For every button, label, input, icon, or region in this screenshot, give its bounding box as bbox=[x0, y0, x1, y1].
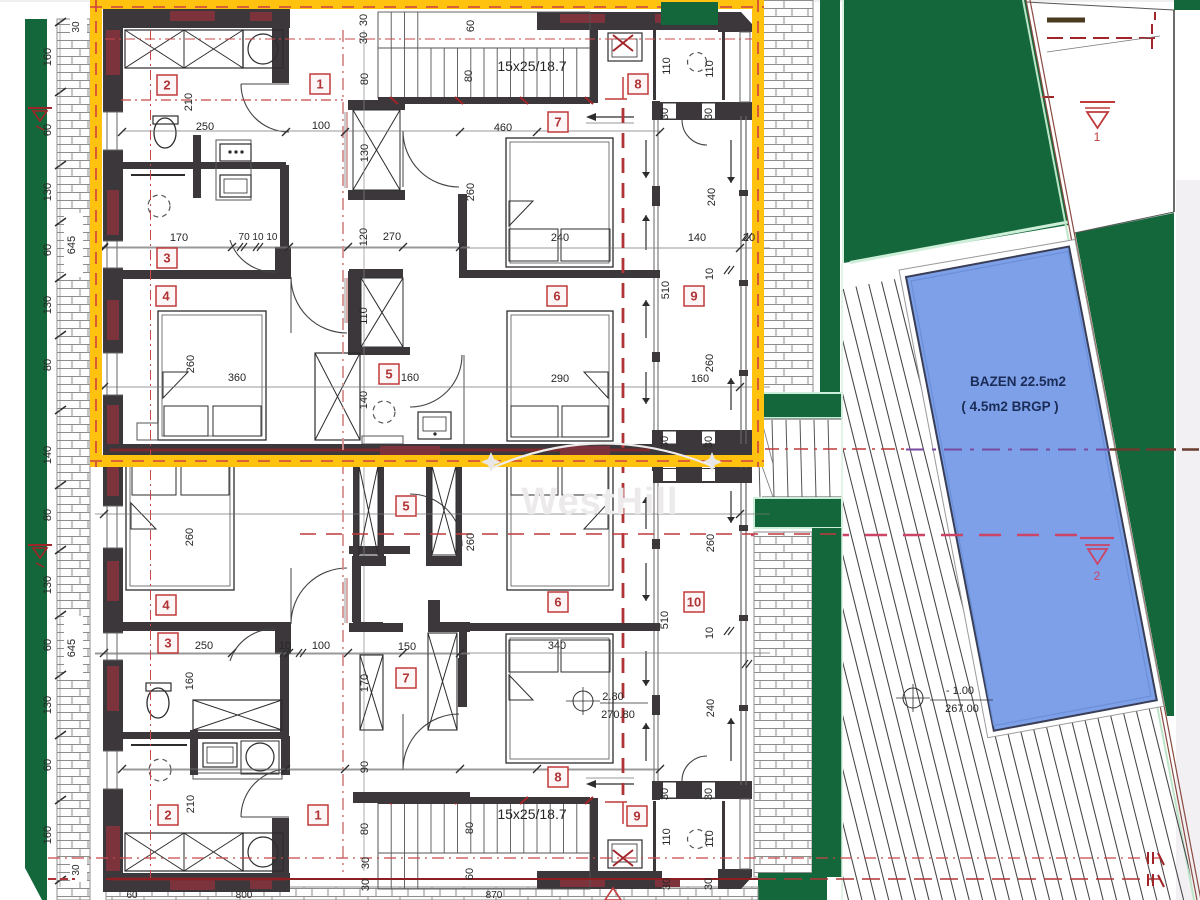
svg-text:7: 7 bbox=[402, 671, 409, 686]
svg-text:80: 80 bbox=[463, 70, 475, 82]
svg-text:250: 250 bbox=[196, 121, 214, 133]
svg-text:4: 4 bbox=[162, 598, 170, 613]
svg-text:170: 170 bbox=[170, 232, 188, 244]
svg-text:9: 9 bbox=[633, 809, 640, 824]
svg-text:130: 130 bbox=[42, 576, 54, 594]
svg-text:100: 100 bbox=[312, 120, 330, 132]
svg-text:15x25/18.7: 15x25/18.7 bbox=[497, 58, 566, 74]
svg-text:250: 250 bbox=[195, 640, 213, 652]
svg-text:30: 30 bbox=[360, 857, 372, 869]
svg-text:120: 120 bbox=[358, 228, 370, 246]
svg-text:30: 30 bbox=[360, 879, 372, 891]
svg-text:30: 30 bbox=[703, 108, 715, 120]
svg-text:2: 2 bbox=[1094, 569, 1101, 583]
svg-text:8: 8 bbox=[634, 77, 641, 92]
svg-text:30: 30 bbox=[358, 32, 370, 44]
svg-text:160: 160 bbox=[401, 372, 419, 384]
svg-text:110: 110 bbox=[704, 60, 716, 78]
svg-text:260: 260 bbox=[465, 533, 477, 551]
svg-text:2: 2 bbox=[164, 808, 171, 823]
svg-text:645: 645 bbox=[66, 639, 78, 657]
svg-text:10: 10 bbox=[704, 627, 716, 639]
svg-text:645: 645 bbox=[66, 236, 78, 254]
svg-text:30: 30 bbox=[71, 21, 82, 33]
svg-text:240: 240 bbox=[551, 232, 569, 244]
svg-text:90: 90 bbox=[359, 761, 371, 773]
svg-text:30: 30 bbox=[358, 14, 370, 26]
svg-text:80: 80 bbox=[359, 823, 371, 835]
svg-text:10: 10 bbox=[687, 595, 701, 610]
svg-text:510: 510 bbox=[660, 281, 672, 299]
svg-text:60: 60 bbox=[42, 244, 54, 256]
svg-text:130: 130 bbox=[42, 183, 54, 201]
svg-text:240: 240 bbox=[705, 699, 717, 717]
svg-text:1: 1 bbox=[314, 808, 321, 823]
svg-text:870: 870 bbox=[486, 890, 503, 900]
svg-text:510: 510 bbox=[659, 611, 671, 629]
svg-text:9: 9 bbox=[690, 289, 697, 304]
svg-text:7: 7 bbox=[554, 115, 561, 130]
svg-text:30: 30 bbox=[703, 788, 715, 800]
svg-text:260: 260 bbox=[705, 534, 717, 552]
svg-text:130: 130 bbox=[42, 296, 54, 314]
svg-text:- 1.00: - 1.00 bbox=[946, 685, 974, 697]
svg-text:5: 5 bbox=[402, 499, 409, 514]
svg-text:6: 6 bbox=[553, 289, 560, 304]
svg-text:60: 60 bbox=[126, 890, 138, 900]
svg-text:15x25/18.7: 15x25/18.7 bbox=[497, 806, 566, 822]
svg-text:140: 140 bbox=[358, 391, 370, 409]
svg-text:3: 3 bbox=[163, 251, 170, 266]
svg-text:260: 260 bbox=[704, 354, 716, 372]
svg-text:10: 10 bbox=[279, 640, 291, 652]
svg-text:30: 30 bbox=[659, 436, 671, 448]
svg-text:80: 80 bbox=[464, 822, 476, 834]
svg-text:6: 6 bbox=[554, 595, 561, 610]
svg-text:30: 30 bbox=[661, 878, 673, 890]
svg-text:140: 140 bbox=[42, 446, 54, 464]
svg-text:2: 2 bbox=[163, 78, 170, 93]
svg-text:4: 4 bbox=[162, 289, 170, 304]
svg-text:80: 80 bbox=[42, 509, 54, 521]
svg-text:30: 30 bbox=[703, 436, 715, 448]
svg-text:( 4.5m2 BRGP ): ( 4.5m2 BRGP ) bbox=[961, 399, 1058, 414]
svg-text:70 10 10: 70 10 10 bbox=[239, 232, 278, 243]
svg-text:240: 240 bbox=[706, 188, 718, 206]
svg-text:160: 160 bbox=[184, 672, 196, 690]
svg-text:110: 110 bbox=[661, 57, 673, 75]
svg-text:30: 30 bbox=[659, 788, 671, 800]
svg-text:170: 170 bbox=[359, 674, 371, 692]
svg-text:10: 10 bbox=[704, 268, 716, 280]
svg-text:5: 5 bbox=[385, 367, 392, 382]
svg-text:8: 8 bbox=[554, 770, 561, 785]
svg-text:160: 160 bbox=[691, 373, 709, 385]
svg-text:60: 60 bbox=[465, 20, 477, 32]
svg-text:150: 150 bbox=[398, 641, 416, 653]
svg-text:130: 130 bbox=[42, 696, 54, 714]
svg-text:110: 110 bbox=[358, 307, 370, 325]
svg-text:210: 210 bbox=[185, 795, 197, 813]
svg-text:1: 1 bbox=[316, 77, 323, 92]
svg-text:2.80: 2.80 bbox=[602, 691, 623, 703]
svg-text:3: 3 bbox=[164, 636, 171, 651]
svg-text:60: 60 bbox=[42, 759, 54, 771]
svg-text:30: 30 bbox=[659, 108, 671, 120]
svg-text:30: 30 bbox=[703, 878, 715, 890]
svg-text:160: 160 bbox=[42, 48, 54, 66]
svg-text:100: 100 bbox=[312, 640, 330, 652]
svg-text:260: 260 bbox=[184, 528, 196, 546]
svg-text:267.00: 267.00 bbox=[945, 703, 979, 715]
svg-text:460: 460 bbox=[494, 122, 512, 134]
svg-text:140: 140 bbox=[688, 232, 706, 244]
svg-text:800: 800 bbox=[236, 890, 253, 900]
svg-text:270: 270 bbox=[383, 231, 401, 243]
svg-text:130: 130 bbox=[359, 144, 371, 162]
svg-text:360: 360 bbox=[228, 372, 246, 384]
svg-text:80: 80 bbox=[42, 359, 54, 371]
svg-text:1: 1 bbox=[1094, 130, 1101, 144]
svg-text:270.80: 270.80 bbox=[601, 709, 635, 721]
svg-text:60: 60 bbox=[464, 868, 476, 880]
svg-text:260: 260 bbox=[185, 355, 197, 373]
svg-text:60: 60 bbox=[42, 639, 54, 651]
svg-text:340: 340 bbox=[548, 640, 566, 652]
svg-text:110: 110 bbox=[704, 830, 716, 848]
svg-text:20: 20 bbox=[743, 232, 755, 244]
svg-text:210: 210 bbox=[183, 93, 195, 111]
svg-text:290: 290 bbox=[551, 373, 569, 385]
svg-text:160: 160 bbox=[42, 826, 54, 844]
svg-text:80: 80 bbox=[359, 73, 371, 85]
svg-text:WestHill: WestHill bbox=[521, 481, 678, 523]
svg-text:BAZEN 22.5m2: BAZEN 22.5m2 bbox=[970, 374, 1066, 389]
svg-text:110: 110 bbox=[661, 828, 673, 846]
svg-text:260: 260 bbox=[465, 183, 477, 201]
svg-text:30: 30 bbox=[71, 864, 82, 876]
